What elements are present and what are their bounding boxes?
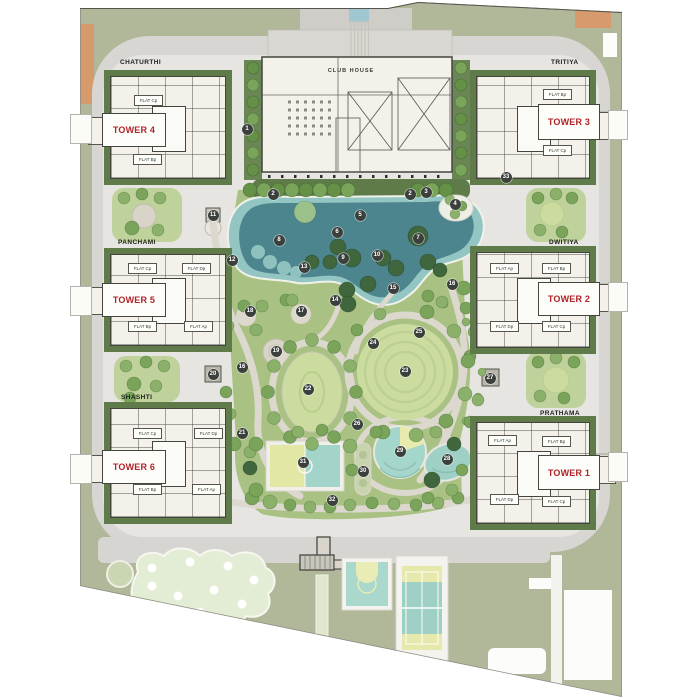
- marker-11: 11: [208, 210, 219, 221]
- flat-label: FLAT Dp: [490, 494, 519, 505]
- marker-12: 12: [227, 255, 238, 266]
- entry-gate: [300, 537, 342, 570]
- marker-3: 3: [421, 187, 432, 198]
- flat-label: FLAT Bp: [542, 263, 571, 274]
- marker-19: 19: [271, 346, 282, 357]
- marker-20: 20: [208, 369, 219, 380]
- flat-label: FLAT Cp: [542, 496, 571, 507]
- half-basketball-court: [342, 558, 392, 610]
- flat-label: FLAT Cp: [134, 95, 163, 106]
- quarter-label-dwitiya: DWITIYA: [549, 239, 579, 246]
- quarter-label-prathama: PRATHAMA: [540, 410, 580, 417]
- marker-17: 17: [296, 306, 307, 317]
- marker-21: 21: [237, 428, 248, 439]
- tower-label-1: TOWER 1: [538, 455, 600, 490]
- gate-east-1: [608, 110, 628, 140]
- site-area: TOWER 4 TOWER 3 TOWER 5 TOWER 2 TOWER 6 …: [0, 0, 700, 700]
- clubhouse: [262, 30, 452, 177]
- marker-25: 25: [414, 327, 425, 338]
- flat-label: FLAT Bp: [133, 154, 162, 165]
- quarter-label-tritiya: TRITIYA: [551, 59, 578, 66]
- flat-label: FLAT Dp: [490, 321, 519, 332]
- marker-5: 5: [355, 210, 366, 221]
- flat-label: FLAT Cp: [543, 145, 572, 156]
- gate-east-3: [608, 452, 628, 482]
- marker-8: 8: [274, 235, 285, 246]
- tennis-court: [396, 556, 448, 662]
- gate-west-1: [70, 114, 92, 144]
- marker-24: 24: [368, 338, 379, 349]
- quarter-label-panchami: PANCHAMI: [118, 239, 156, 246]
- flat-label: FLAT Bp: [543, 89, 572, 100]
- site-plan: TOWER 4 TOWER 3 TOWER 5 TOWER 2 TOWER 6 …: [0, 0, 700, 700]
- marker-27: 27: [485, 373, 496, 384]
- marker-2: 2: [405, 189, 416, 200]
- flat-label: FLAT Ap: [192, 484, 221, 495]
- tower-label-2: TOWER 2: [538, 282, 600, 316]
- tower-label-3: TOWER 3: [538, 104, 600, 140]
- tower-label-5: TOWER 5: [102, 283, 166, 317]
- flat-label: FLAT Cp: [128, 263, 157, 274]
- gate-east-2: [608, 282, 628, 312]
- flat-label: FLAT Ap: [490, 263, 519, 274]
- marker-32: 32: [327, 495, 338, 506]
- marker-31: 31: [298, 457, 309, 468]
- flat-label: FLAT Cp: [133, 428, 162, 439]
- marker-14: 14: [330, 295, 341, 306]
- marker-4: 4: [450, 199, 461, 210]
- quarter-label-chaturthi: CHATURTHI: [120, 59, 161, 66]
- flat-label: FLAT Ap: [184, 321, 213, 332]
- marker-29: 29: [395, 446, 406, 457]
- marker-13: 13: [299, 262, 310, 273]
- marker-16: 16: [447, 279, 458, 290]
- flat-label: FLAT Ap: [488, 435, 517, 446]
- ornamental-pond: [107, 549, 275, 631]
- flat-label: FLAT Dp: [194, 428, 223, 439]
- clubhouse-label: CLUB HOUSE: [308, 68, 394, 74]
- marker-28: 28: [442, 454, 453, 465]
- tower-label-4: TOWER 4: [102, 113, 166, 147]
- marker-10: 10: [372, 250, 383, 261]
- marker-15: 15: [388, 283, 399, 294]
- marker-1: 1: [242, 124, 253, 135]
- flat-label: FLAT Dp: [182, 263, 211, 274]
- flat-label: FLAT Bp: [542, 436, 571, 447]
- marker-33: 33: [501, 172, 512, 183]
- marker-9: 9: [338, 253, 349, 264]
- tower-label-6: TOWER 6: [102, 450, 166, 484]
- marker-7: 7: [413, 233, 424, 244]
- marker-16: 16: [237, 362, 248, 373]
- marker-6: 6: [332, 227, 343, 238]
- marker-2: 2: [268, 189, 279, 200]
- flat-label: FLAT Cp: [542, 321, 571, 332]
- marker-30: 30: [358, 466, 369, 477]
- flat-label: FLAT Bp: [133, 484, 162, 495]
- quarter-label-shashti: SHASHTI: [121, 394, 152, 401]
- flat-label: FLAT Bp: [128, 321, 157, 332]
- marker-18: 18: [245, 306, 256, 317]
- marker-22: 22: [303, 384, 314, 395]
- marker-26: 26: [352, 419, 363, 430]
- gate-west-3: [70, 454, 92, 484]
- marker-23: 23: [400, 366, 411, 377]
- gate-west-2: [70, 286, 92, 316]
